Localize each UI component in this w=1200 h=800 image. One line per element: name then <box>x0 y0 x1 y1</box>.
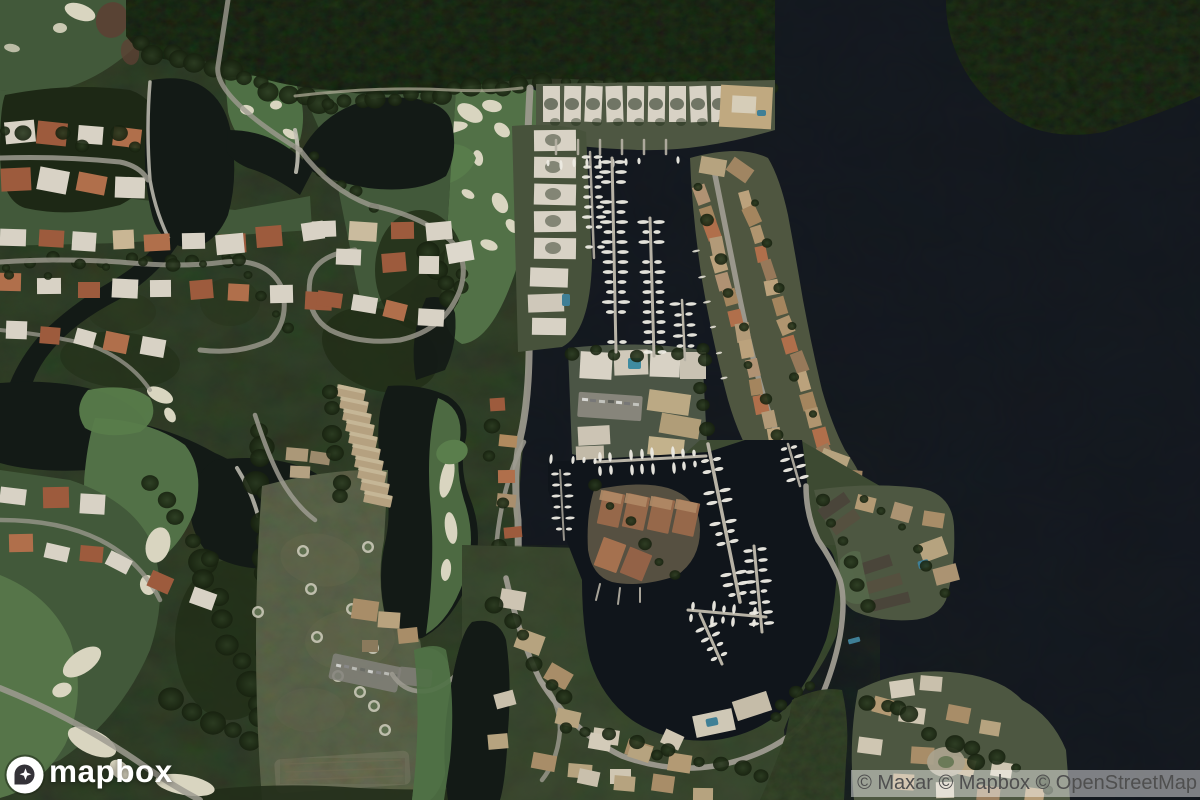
svg-text:© Maxar © Mapbox © OpenStreetM: © Maxar © Mapbox © OpenStreetMap <box>857 772 1197 794</box>
svg-text:mapbox: mapbox <box>49 753 173 789</box>
